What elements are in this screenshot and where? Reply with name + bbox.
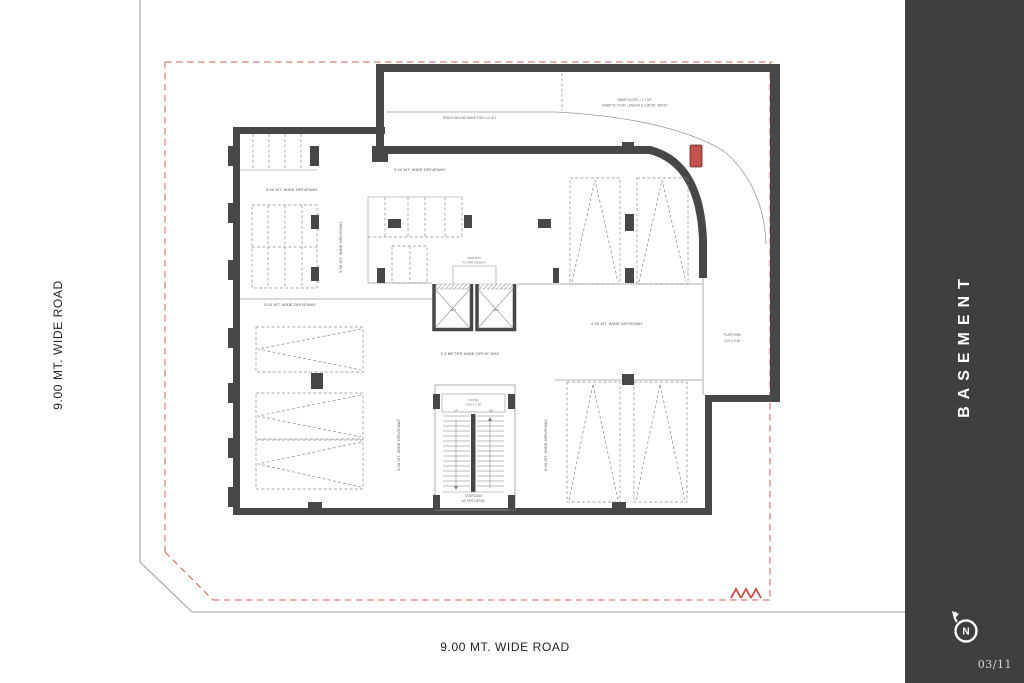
driveway-label-450: 4.50 MT. WIDE DRIVEWAY xyxy=(591,321,643,326)
north-letter: N xyxy=(962,627,969,638)
car-on-ramp xyxy=(690,145,702,167)
space-below-ramp-note: SPACE BELOW RAMP FOR U.G.W.T. xyxy=(443,116,497,120)
platform-label-2: 3.20 X 6.00 xyxy=(724,339,741,343)
sidebar: BASEMENT N 03/11 xyxy=(905,0,1024,683)
road-label-left: 9.00 MT. WIDE ROAD xyxy=(51,280,65,410)
driveway-label-mid-left: 3.00 MT. WIDE DRIVEWAY xyxy=(264,302,316,307)
building-walls xyxy=(228,64,780,515)
driveway-label-top-left: 3.00 MT. WIDE DRIVEWAY xyxy=(266,187,318,192)
parking-stalls-center xyxy=(368,197,551,283)
floor-plan-svg: LIFT LIFT OPENING AS PER DESIGN xyxy=(0,0,1024,683)
lift-block: LIFT LIFT OPENING AS PER DESIGN xyxy=(434,256,515,330)
lift-label-1: LIFT xyxy=(450,308,456,312)
north-compass-icon: N xyxy=(946,610,984,648)
parking-stalls-bottom-left xyxy=(256,327,363,489)
ramp-note-line2: RAMP 51.70 MT. LENGTH & 3.25 MT. WIDTH xyxy=(602,104,668,108)
entry-direction-arrows xyxy=(731,589,761,598)
road-edges xyxy=(140,0,905,612)
stair-dn-label: DN xyxy=(489,409,493,413)
parking-stalls-top-right xyxy=(553,178,688,284)
lift-opening-note-2: AS PER DESIGN xyxy=(462,261,485,265)
staircase-label-2: AS PER DETAIL xyxy=(462,499,486,503)
driveway-label-vert-stair-left: 3.00 MT. WIDE DRIVEWAY xyxy=(396,419,401,471)
page-number: 03/11 xyxy=(978,658,1012,671)
staircase-block: UP DN FOYER 3.00 X 2.00 STAIRCASE AS PER… xyxy=(433,385,515,510)
foyer-label-1: FOYER xyxy=(468,398,479,402)
road-label-bottom: 9.00 MT. WIDE ROAD xyxy=(440,640,570,654)
driveway-label-top-center: 3.00 MT. WIDE DRIVEWAY xyxy=(394,167,446,172)
driveway-label-340: 3.4 METER WIDE DRIVE WAY xyxy=(441,351,500,356)
driveway-label-vert-stair-right: 3.00 MT. WIDE DRIVEWAY xyxy=(543,419,548,471)
lift-label-2: LIFT xyxy=(493,308,499,312)
ramp-note-line1: RAMP SLOPE = 1:7 MT. xyxy=(618,98,653,102)
drawing-sheet: LIFT LIFT OPENING AS PER DESIGN xyxy=(0,0,1024,683)
staircase-label-1: STAIRCASE xyxy=(465,494,483,498)
ramp-area xyxy=(386,73,766,244)
foyer-label-2: 3.00 X 2.00 xyxy=(466,403,482,407)
parking-stalls-top-left xyxy=(240,134,319,288)
parking-stalls-bottom-right xyxy=(567,374,687,502)
lift-opening-note-1: OPENING xyxy=(467,256,482,260)
driveway-label-vert-left: 3.00 MT. WIDE DRIVEWAY xyxy=(338,221,343,273)
stair-up-label: UP xyxy=(454,409,458,413)
platform-label-1: PLATFORM xyxy=(723,333,740,337)
sheet-title: BASEMENT xyxy=(956,272,974,418)
